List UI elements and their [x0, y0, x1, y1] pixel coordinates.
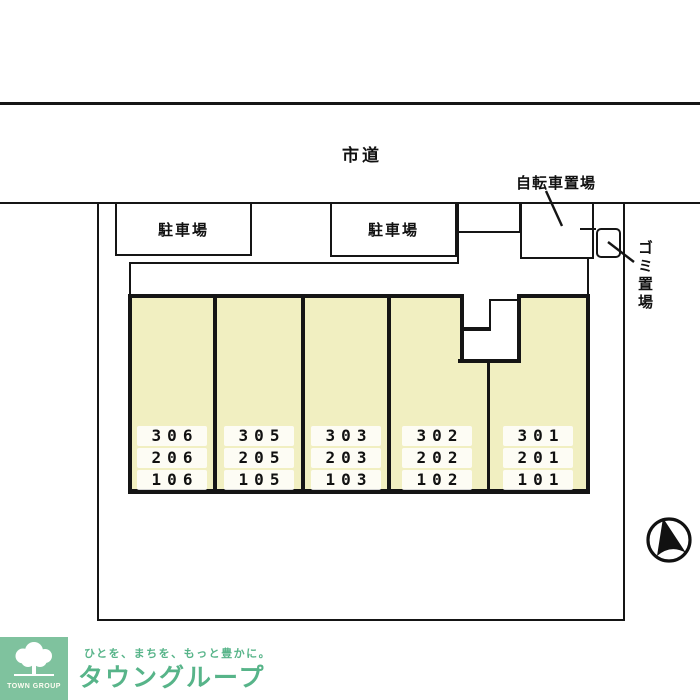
unit-column-3: 303 203 103: [311, 426, 381, 490]
unit-number: 303: [311, 426, 381, 446]
entrance-notch-bottom: [458, 359, 521, 363]
site-boundary-bottom: [97, 619, 625, 621]
building-right-edge: [586, 294, 590, 494]
bicycle-parking-label: 自転車置場: [498, 172, 614, 193]
unit-number: 201: [503, 448, 573, 468]
unit-column-1: 306 206 106: [137, 426, 207, 490]
road-label: 市道: [312, 141, 412, 166]
north-arrow-compass-icon: [641, 512, 697, 568]
unit-partition-3: [387, 294, 391, 489]
unit-partition-1: [213, 294, 217, 489]
unit-column-4: 302 202 102: [402, 426, 472, 490]
stair-box-left-line: [489, 299, 491, 329]
road-north-edge-line: [0, 102, 700, 105]
entrance-notch-mid-line: [460, 327, 491, 331]
entrance-notch-right: [517, 294, 521, 363]
open-bay-area: [457, 202, 521, 233]
building-top-edge-right: [517, 294, 590, 298]
bay-stub-line: [457, 233, 459, 264]
unit-number: 202: [402, 448, 472, 468]
unit-number: 306: [137, 426, 207, 446]
unit-number: 206: [137, 448, 207, 468]
corridor-right-line: [587, 259, 589, 298]
building-left-edge: [128, 294, 132, 494]
corridor-left-line: [129, 262, 131, 298]
unit-number: 101: [503, 470, 573, 490]
garbage-area-label: ゴミ置場: [634, 240, 655, 336]
town-group-tree-icon: [10, 642, 58, 682]
garbage-area-ledge-line: [580, 228, 596, 230]
unit-number: 302: [402, 426, 472, 446]
unit-partition-4: [487, 361, 490, 489]
unit-column-5: 301 201 101: [503, 426, 573, 490]
site-boundary-left: [97, 202, 99, 621]
parking-lot-2-label: 駐車場: [368, 219, 419, 240]
site-plan-canvas: 市道 駐車場 駐車場 自転車置場 ゴミ置場 306 206 106 305 20…: [0, 0, 700, 700]
town-group-logo-box: TOWN GROUP: [0, 637, 68, 700]
unit-number: 102: [402, 470, 472, 490]
brand-name: タウングループ: [78, 658, 266, 694]
bicycle-parking-area: [520, 202, 594, 259]
site-boundary-right: [623, 202, 625, 621]
unit-number: 205: [224, 448, 294, 468]
unit-number: 103: [311, 470, 381, 490]
unit-number: 301: [503, 426, 573, 446]
parking-lot-1: 駐車場: [115, 202, 252, 256]
unit-number: 105: [224, 470, 294, 490]
unit-number: 203: [311, 448, 381, 468]
unit-number: 305: [224, 426, 294, 446]
town-group-logo-text: TOWN GROUP: [0, 683, 68, 690]
corridor-top-line: [129, 262, 458, 264]
building-top-edge-left: [128, 294, 464, 298]
unit-partition-2: [301, 294, 305, 489]
stair-box-top-line: [489, 299, 518, 301]
garbage-area-box: [596, 228, 621, 258]
unit-column-2: 305 205 105: [224, 426, 294, 490]
unit-number: 106: [137, 470, 207, 490]
parking-lot-1-label: 駐車場: [158, 219, 209, 240]
parking-lot-2: 駐車場: [330, 202, 457, 257]
